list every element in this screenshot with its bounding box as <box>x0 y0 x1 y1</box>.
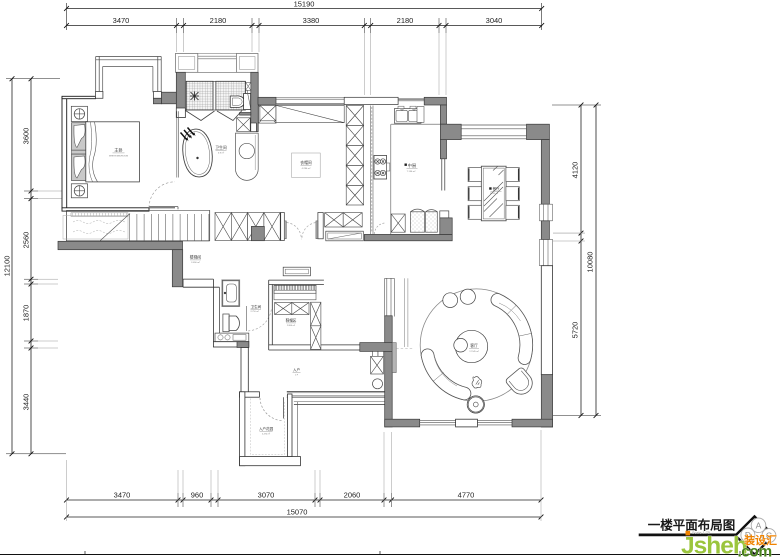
svg-text:楼梯间: 楼梯间 <box>190 255 202 260</box>
svg-text:15190: 15190 <box>294 0 315 9</box>
svg-text:卫生间: 卫生间 <box>215 145 227 150</box>
svg-text:1870: 1870 <box>22 305 31 322</box>
svg-text:3040: 3040 <box>486 16 503 25</box>
svg-text:3600: 3600 <box>22 128 31 145</box>
svg-text:10.61 m²: 10.61 m² <box>490 192 499 195</box>
svg-text:5.470 m²: 5.470 m² <box>262 433 271 436</box>
svg-text:3470: 3470 <box>113 16 130 25</box>
svg-text:A: A <box>756 520 762 530</box>
svg-text:7.130 m²: 7.130 m² <box>407 170 416 173</box>
svg-text:2.800 m²: 2.800 m² <box>287 324 296 327</box>
svg-text:10080: 10080 <box>586 252 595 273</box>
svg-text:5720: 5720 <box>571 322 580 339</box>
svg-text:960: 960 <box>191 491 204 500</box>
svg-text:3440: 3440 <box>22 394 31 411</box>
svg-text:餐厅: 餐厅 <box>493 186 500 191</box>
svg-text:15070: 15070 <box>287 508 308 517</box>
svg-text:2560: 2560 <box>22 232 31 249</box>
svg-text:3470: 3470 <box>114 491 131 500</box>
svg-text:2180: 2180 <box>210 16 227 25</box>
svg-text:衣帽间: 衣帽间 <box>300 160 312 165</box>
svg-text:鞋帽区: 鞋帽区 <box>286 318 297 323</box>
svg-text:4770: 4770 <box>458 491 475 500</box>
svg-text:3380: 3380 <box>303 16 320 25</box>
svg-text:4.280 m²: 4.280 m² <box>302 167 311 170</box>
svg-text:主卧: 主卧 <box>114 147 122 154</box>
svg-text:3.9 m²: 3.9 m² <box>218 152 224 155</box>
svg-text:入户花园: 入户花园 <box>259 426 274 431</box>
svg-text:装设汇: 装设汇 <box>743 533 777 547</box>
svg-text:卫生间: 卫生间 <box>251 304 262 309</box>
svg-text:4120: 4120 <box>571 162 580 179</box>
svg-text:3.050 m²: 3.050 m² <box>191 261 200 264</box>
svg-text:17.545 m²: 17.545 m² <box>469 350 479 353</box>
svg-text:中厨: 中厨 <box>408 162 416 169</box>
svg-text:12100: 12100 <box>3 256 12 277</box>
svg-text:WHITE BEDROOM: WHITE BEDROOM <box>109 155 128 157</box>
svg-text:2060: 2060 <box>344 491 361 500</box>
svg-text:入户: 入户 <box>293 367 301 372</box>
svg-text:2180: 2180 <box>397 16 414 25</box>
svg-text:2.710 m²: 2.710 m² <box>251 310 260 313</box>
svg-text:3070: 3070 <box>258 491 275 500</box>
svg-text:客厅: 客厅 <box>470 343 478 348</box>
